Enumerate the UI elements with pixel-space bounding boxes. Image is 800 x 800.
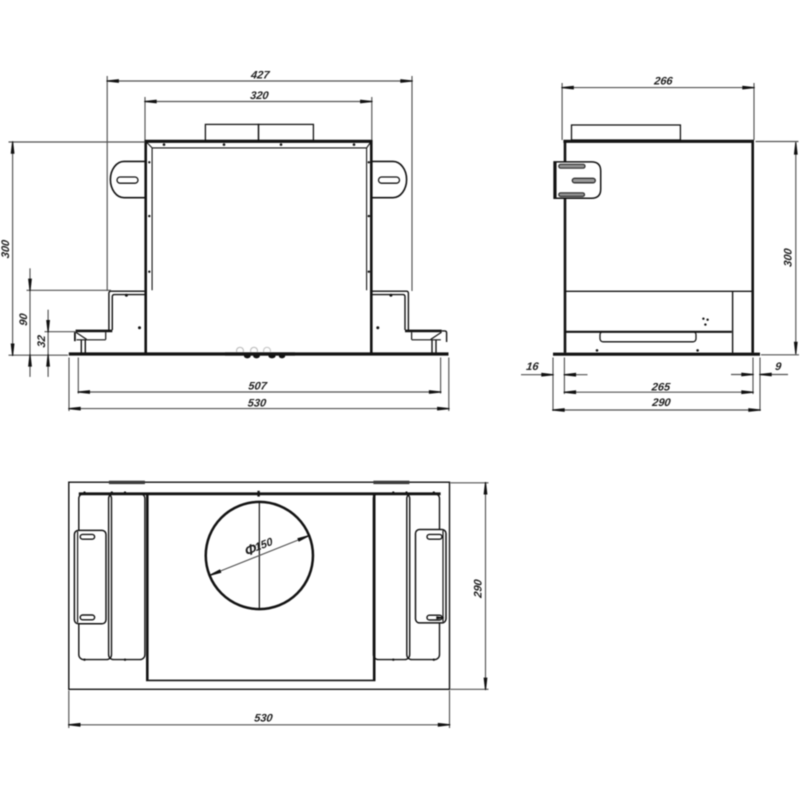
svg-text:300: 300 [782,247,794,268]
svg-text:90: 90 [18,312,30,327]
svg-text:265: 265 [650,381,672,393]
svg-text:530: 530 [253,712,274,724]
svg-text:427: 427 [249,69,271,81]
svg-text:266: 266 [652,75,674,87]
svg-text:530: 530 [247,398,268,410]
svg-text:300: 300 [0,238,12,259]
svg-text:32: 32 [36,334,48,349]
svg-text:290: 290 [650,397,672,409]
svg-text:16: 16 [526,361,541,373]
svg-text:320: 320 [249,90,270,102]
svg-text:290: 290 [473,578,485,600]
svg-text:507: 507 [248,380,269,392]
